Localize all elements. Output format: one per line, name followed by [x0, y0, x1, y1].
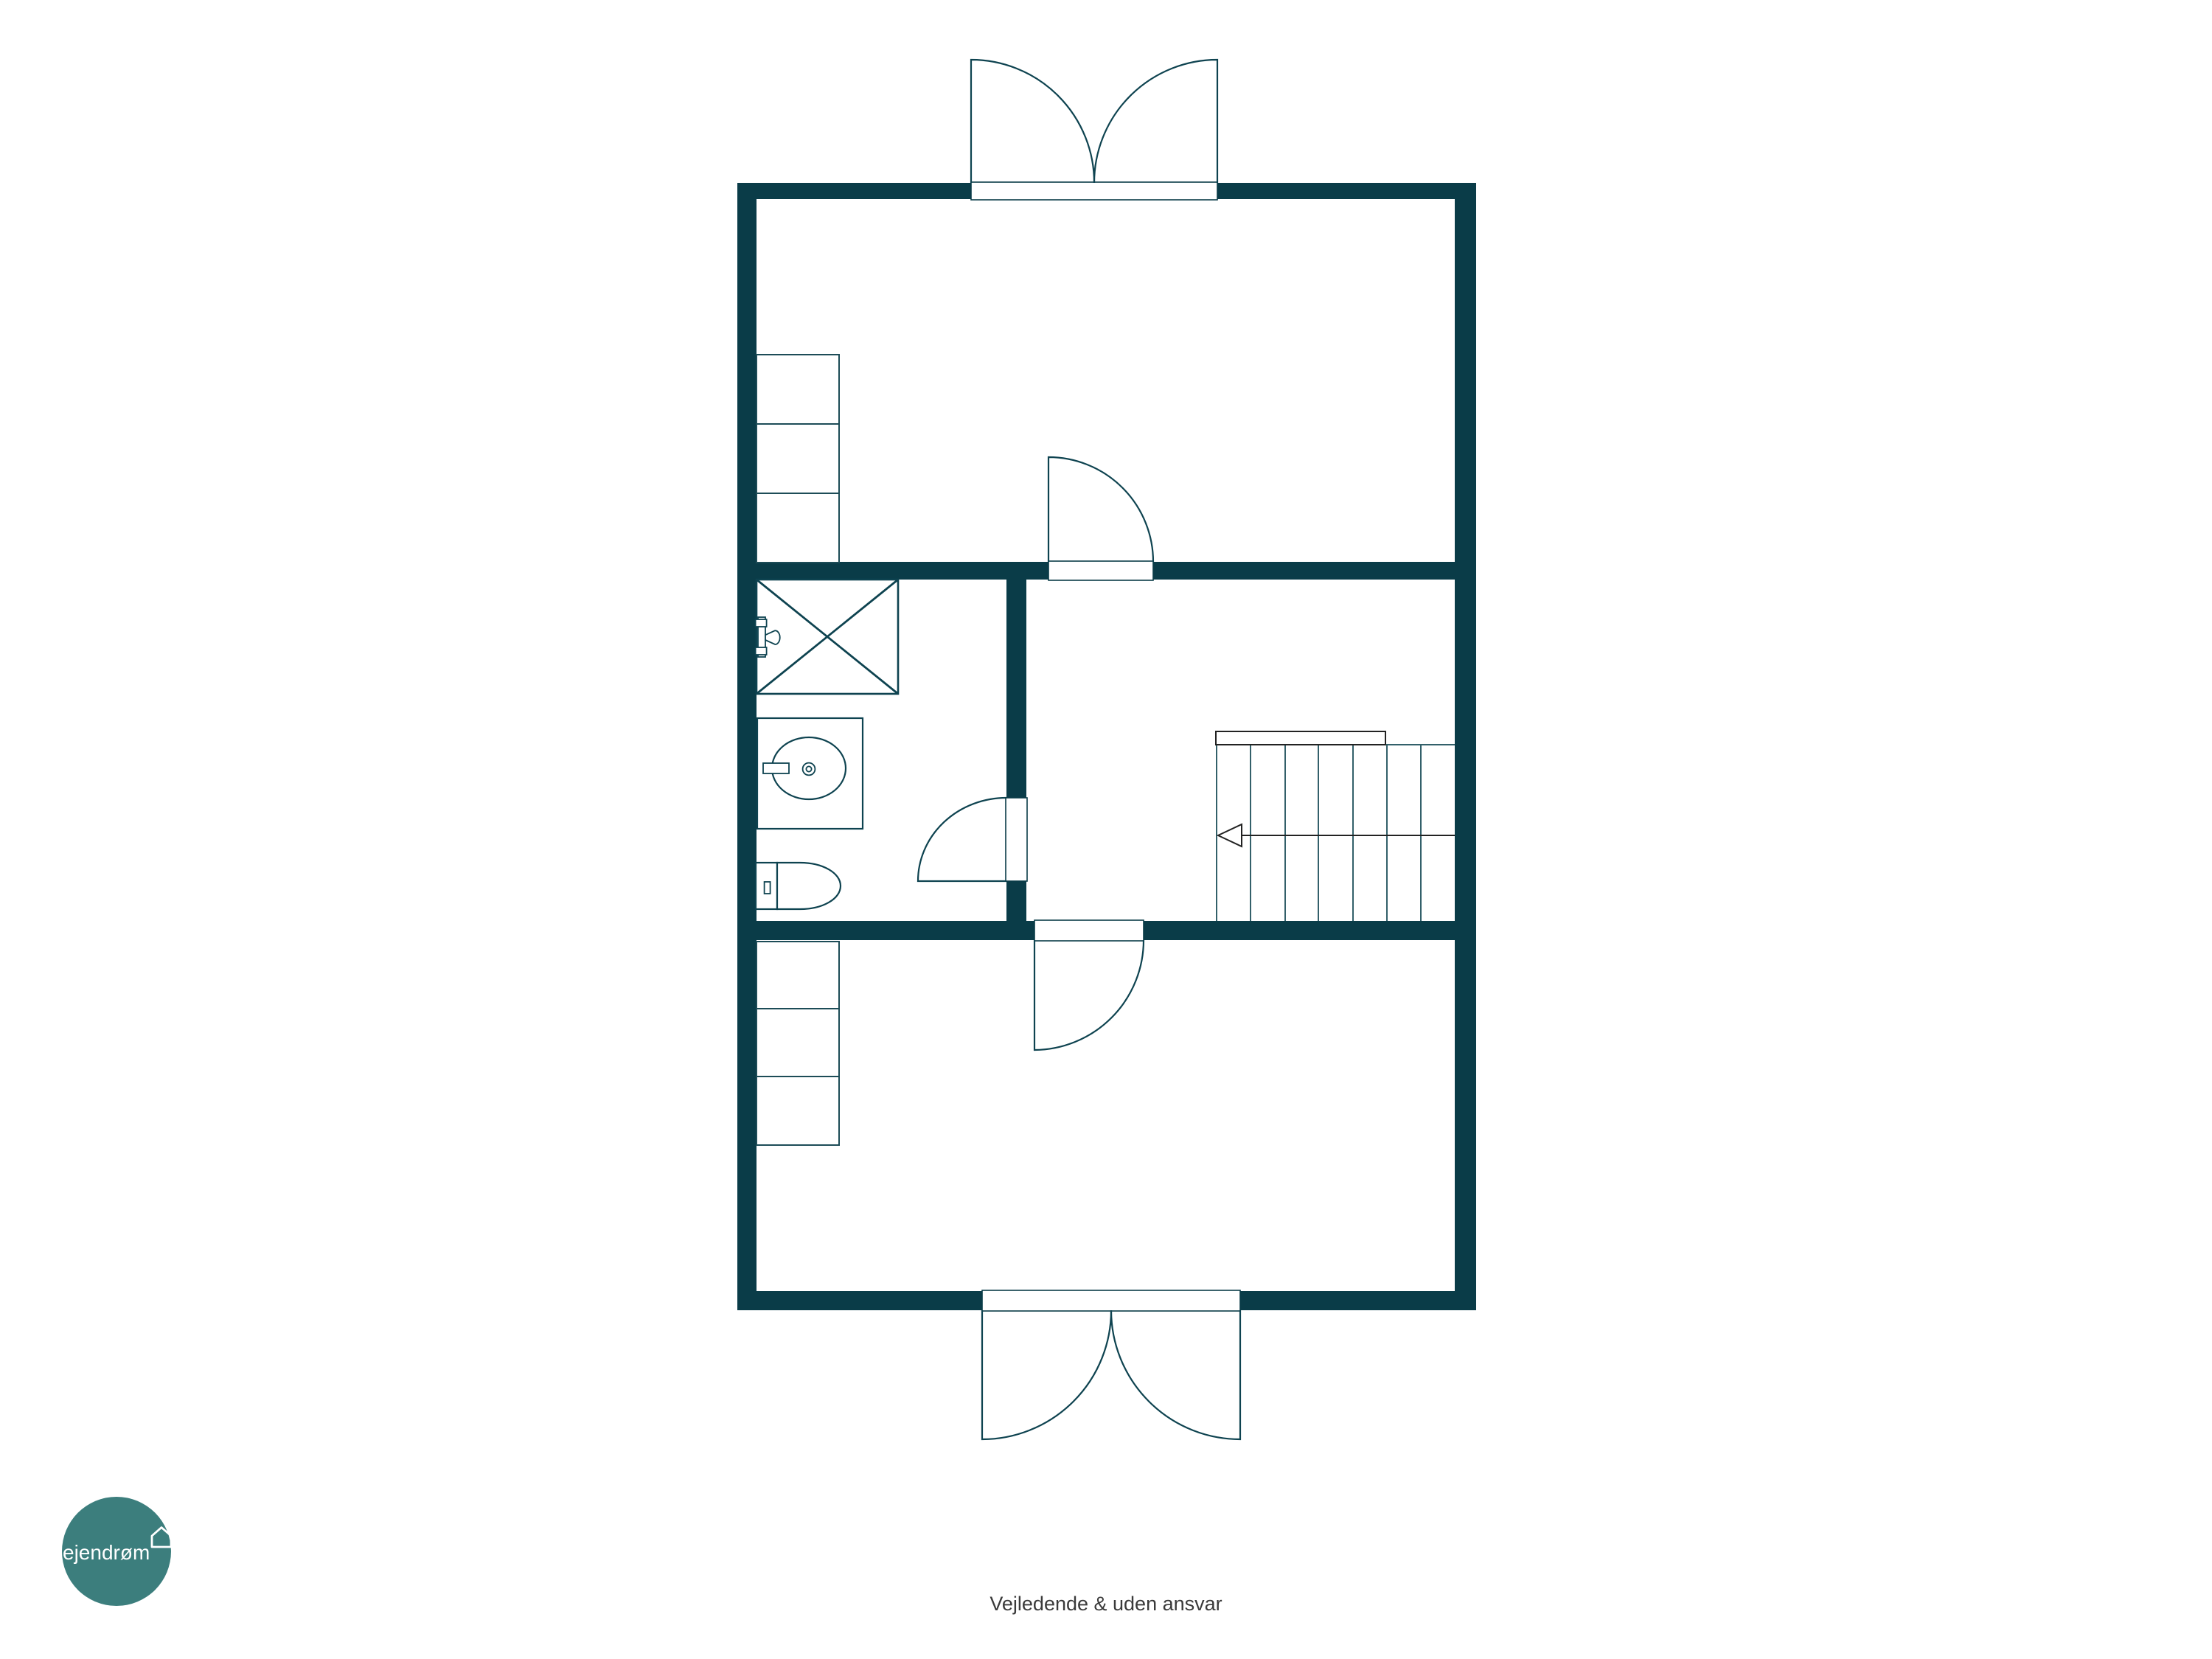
stair-arrow-head — [1218, 824, 1242, 846]
toilet-bowl — [777, 863, 841, 909]
wall-right — [1455, 183, 1476, 1310]
opening-bottom-room — [1034, 920, 1144, 941]
brand-logo: ejendrøm — [62, 1497, 171, 1606]
shower — [756, 580, 898, 694]
opening-top-entry — [971, 182, 1217, 200]
opening-bathroom — [1006, 798, 1027, 881]
floor-plan-page: ejendrøm Vejledende & uden ansvar — [0, 0, 2212, 1659]
double-door-top — [971, 60, 1217, 183]
sink-faucet-icon — [763, 763, 789, 773]
door-leaf-left — [982, 1310, 1111, 1439]
stair-handrail — [1216, 731, 1385, 745]
door-top-room — [1048, 457, 1153, 562]
logo-text: ejendrøm — [63, 1541, 150, 1564]
wardrobe-outline — [757, 942, 839, 1145]
toilet-button-icon — [765, 882, 771, 894]
opening-bottom-entry — [982, 1290, 1240, 1311]
opening-top-room — [1048, 561, 1153, 580]
wardrobe-top-room — [757, 355, 839, 563]
toilet — [756, 863, 841, 909]
double-door-bottom — [982, 1310, 1240, 1439]
sink-drain-icon-inner — [806, 766, 811, 771]
floor-plan: ejendrøm Vejledende & uden ansvar — [0, 0, 2212, 1659]
wall-left — [737, 183, 757, 1310]
door-bottom-room — [1034, 940, 1144, 1050]
footer-disclaimer: Vejledende & uden ansvar — [990, 1593, 1222, 1615]
door-leaf-right — [1111, 1310, 1240, 1439]
door-bathroom — [918, 798, 1006, 881]
wardrobe-bottom-room — [757, 942, 839, 1145]
door-leaf-left — [971, 60, 1094, 183]
door-leaf-right — [1094, 60, 1217, 183]
wardrobe-outline — [757, 355, 839, 563]
staircase — [1216, 731, 1455, 921]
sink — [757, 718, 863, 829]
